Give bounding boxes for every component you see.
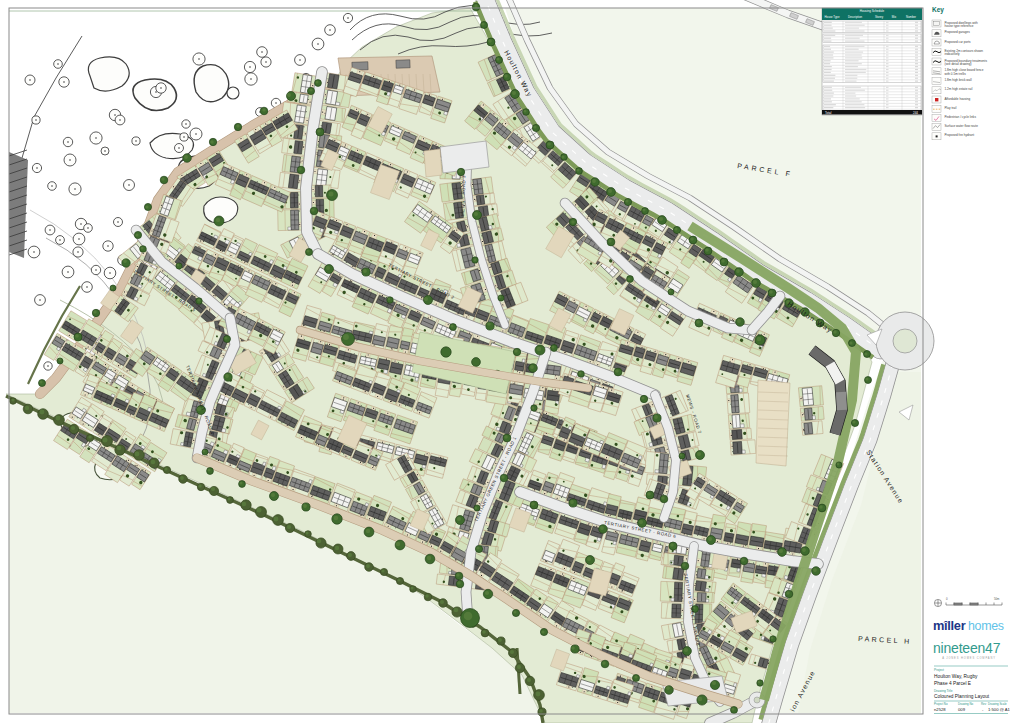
svg-text:Key: Key [932, 6, 944, 14]
svg-text:Proposed garages: Proposed garages [945, 30, 971, 34]
svg-text:mîller: mîller [933, 618, 966, 633]
svg-text:Storey: Storey [875, 15, 884, 19]
svg-text:Houlton Way, Rugby: Houlton Way, Rugby [934, 674, 978, 679]
svg-text:Project No: Project No [934, 702, 948, 706]
svg-text:1.2m high estate rail: 1.2m high estate rail [945, 87, 973, 91]
svg-text:Mix: Mix [892, 15, 897, 19]
svg-text:Housing Schedule: Housing Schedule [860, 9, 885, 13]
svg-text:50m: 50m [994, 597, 1000, 601]
svg-text:Rev: Rev [981, 702, 987, 706]
svg-text:Total: Total [825, 111, 832, 115]
svg-text:1.8m high brick wall: 1.8m high brick wall [945, 78, 972, 82]
svg-text:n2528: n2528 [934, 707, 946, 712]
svg-text:Description: Description [848, 15, 862, 19]
svg-text:homes: homes [968, 619, 1004, 633]
svg-text:Pedestrian / cycle links: Pedestrian / cycle links [945, 115, 977, 119]
svg-text:Coloured Planning Layout: Coloured Planning Layout [934, 694, 990, 699]
svg-text:009: 009 [958, 707, 966, 712]
svg-text:(see detail drawing): (see detail drawing) [945, 62, 972, 66]
svg-text:Play trail: Play trail [945, 106, 957, 110]
svg-text:1:500 @ A1: 1:500 @ A1 [988, 707, 1011, 712]
svg-text:indicatively: indicatively [945, 52, 961, 56]
svg-text:A JONES HOMES COMPANY: A JONES HOMES COMPANY [942, 656, 996, 660]
svg-text:Surface water flow route: Surface water flow route [945, 124, 979, 128]
svg-text:Drawing Scale: Drawing Scale [988, 702, 1007, 706]
svg-text:Drawing Title: Drawing Title [934, 689, 953, 693]
svg-text:Drawing No: Drawing No [958, 702, 973, 706]
svg-text:Proposed fire hydrant: Proposed fire hydrant [945, 133, 975, 137]
svg-text:Affordable housing: Affordable housing [945, 97, 971, 101]
svg-text:nineteen47: nineteen47 [933, 640, 1001, 656]
svg-text:house type reference: house type reference [945, 24, 974, 28]
svg-text:Proposed car ports: Proposed car ports [945, 40, 972, 44]
svg-text:House Type: House Type [825, 15, 840, 19]
svg-text:with 0.5m trellis: with 0.5m trellis [945, 72, 967, 76]
svg-text:Project: Project [934, 668, 944, 672]
svg-text:Number: Number [906, 15, 916, 19]
svg-text:Phase 4 Parcel E: Phase 4 Parcel E [934, 681, 971, 686]
svg-text:244: 244 [913, 111, 918, 115]
